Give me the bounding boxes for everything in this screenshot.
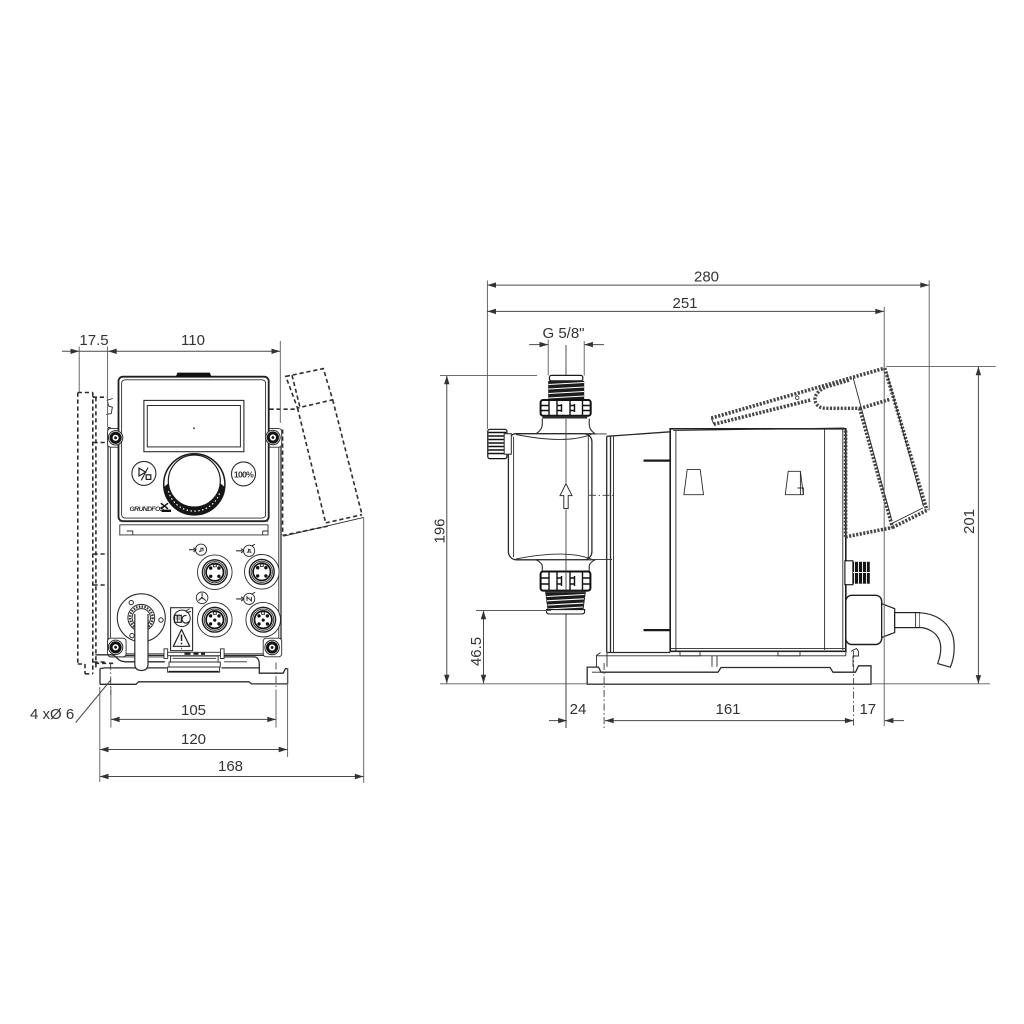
svg-text:17.5: 17.5	[79, 332, 108, 349]
svg-text:196: 196	[432, 518, 449, 543]
svg-text:4 xØ 6: 4 xØ 6	[30, 706, 74, 723]
svg-text:161: 161	[715, 701, 740, 718]
svg-text:G 5/8": G 5/8"	[542, 325, 584, 342]
svg-text:24: 24	[570, 701, 587, 718]
svg-text:17: 17	[859, 701, 876, 718]
svg-text:GRUNDFOS: GRUNDFOS	[130, 506, 165, 513]
svg-text:100%: 100%	[234, 469, 254, 479]
svg-text:120: 120	[181, 731, 206, 748]
svg-text:168: 168	[218, 758, 243, 775]
svg-text:105: 105	[181, 702, 206, 719]
svg-text:201: 201	[961, 509, 978, 534]
svg-text:280: 280	[694, 269, 719, 286]
svg-text:110: 110	[181, 332, 205, 349]
svg-text:46.5: 46.5	[468, 637, 485, 666]
svg-text:251: 251	[672, 295, 697, 312]
